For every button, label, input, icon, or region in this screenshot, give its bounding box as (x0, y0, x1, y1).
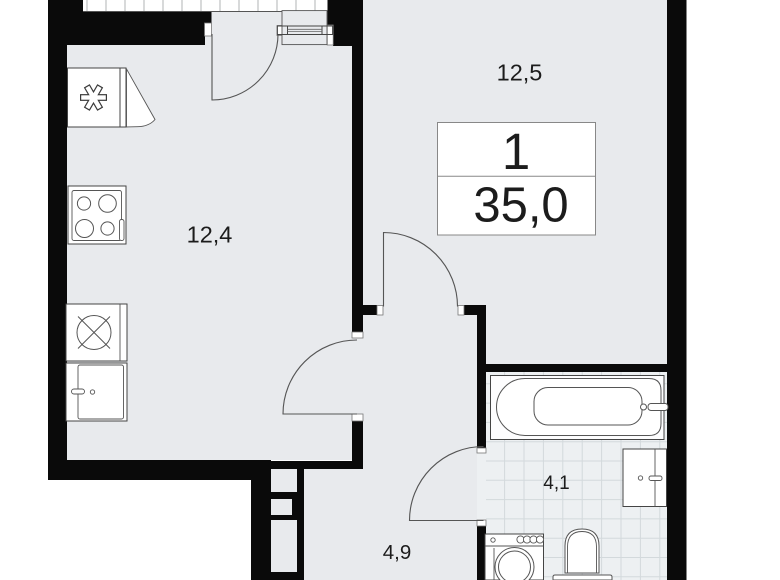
svg-text:35,0: 35,0 (473, 179, 568, 233)
svg-text:4,9: 4,9 (383, 541, 412, 564)
svg-text:1: 1 (502, 123, 530, 180)
svg-text:12,5: 12,5 (497, 59, 543, 85)
svg-text:12,4: 12,4 (187, 221, 233, 247)
svg-text:4,1: 4,1 (543, 473, 569, 494)
